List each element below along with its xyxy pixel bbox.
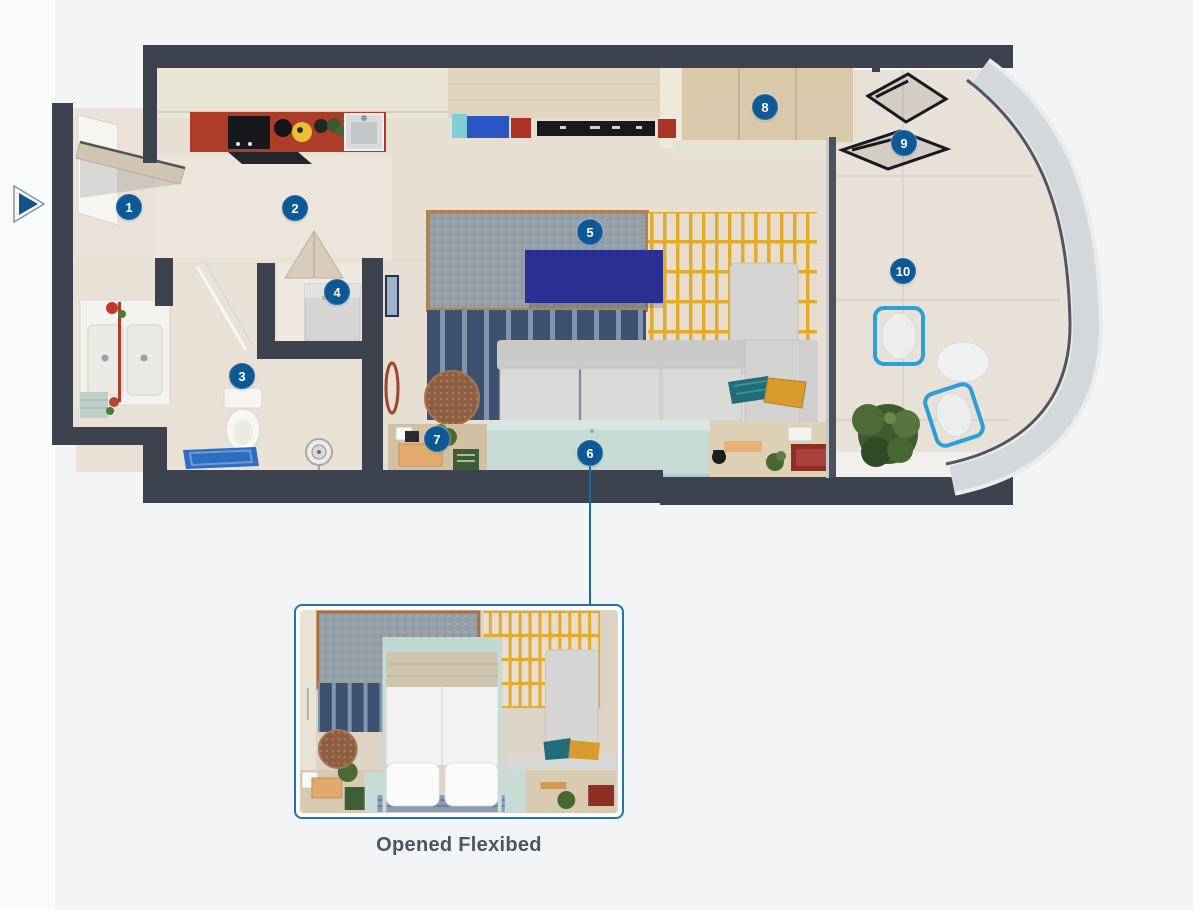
- tv: [525, 250, 663, 303]
- hotspot-6[interactable]: 6: [577, 440, 603, 466]
- balcony-table: [937, 342, 989, 382]
- wall-top: [143, 45, 1013, 68]
- hotspot-3[interactable]: 3: [229, 363, 255, 389]
- kitchen-upper-cabinets: [157, 68, 450, 118]
- hotspot-10[interactable]: 10: [890, 258, 916, 284]
- sofa-cushion: [662, 368, 742, 422]
- inset-pillow: [386, 763, 439, 806]
- shelf-book-teal: [452, 114, 467, 138]
- play-icon: [11, 183, 49, 225]
- inset-blanket: [386, 652, 497, 687]
- sofa-cushion: [581, 368, 660, 422]
- sofa-cushion: [500, 368, 579, 422]
- toiletry-red: [106, 302, 118, 314]
- overhead-cabinet: [448, 68, 680, 118]
- sofa-backrest: [497, 340, 745, 370]
- corridor-floor: [155, 155, 392, 260]
- camera: [712, 450, 726, 464]
- inset-ottoman: [319, 730, 357, 768]
- wall-topleft: [143, 45, 157, 163]
- hotspot-4[interactable]: 4: [324, 279, 350, 305]
- flexibed-inset-image: [300, 610, 618, 813]
- hotspot-5[interactable]: 5: [577, 219, 603, 245]
- hotspot-1[interactable]: 1: [116, 194, 142, 220]
- hotspot-2[interactable]: 2: [282, 195, 308, 221]
- shelf-book-red: [511, 118, 531, 138]
- leader-line: [589, 466, 591, 606]
- range-hood-shadow: [228, 152, 312, 164]
- wall-left: [52, 103, 73, 445]
- hotspot-7[interactable]: 7: [424, 426, 450, 452]
- rattan-ottoman: [425, 371, 479, 425]
- play-button[interactable]: [11, 183, 49, 225]
- tablet: [788, 427, 812, 441]
- pot: [274, 119, 292, 137]
- wall-mirror: [386, 276, 398, 316]
- hotspot-8[interactable]: 8: [752, 94, 778, 120]
- toilet-tank: [224, 388, 262, 408]
- wall-bottom-left: [143, 470, 663, 503]
- towels: [80, 392, 108, 418]
- balcony-plant: [852, 404, 920, 467]
- hotspot-9[interactable]: 9: [891, 130, 917, 156]
- shelf-book-blue: [467, 116, 509, 138]
- inset-yellow-pillow: [568, 740, 600, 760]
- inset-pillow: [445, 763, 498, 806]
- wood-tray: [724, 441, 762, 452]
- balcony-window-divider: [829, 137, 836, 478]
- living-room: [386, 212, 835, 480]
- stateroom-floorplan-stage: 1 2 3 4 5 6 7 8 9 10: [0, 0, 1193, 910]
- yellow-pillow: [764, 378, 806, 408]
- inset-chaise-backrest: [545, 650, 598, 753]
- wall-bathroom-right: [362, 258, 383, 472]
- inset-caption: Opened Flexibed: [294, 834, 624, 857]
- inset-striped-panel: [318, 683, 385, 732]
- flexibed-inset: [294, 604, 624, 819]
